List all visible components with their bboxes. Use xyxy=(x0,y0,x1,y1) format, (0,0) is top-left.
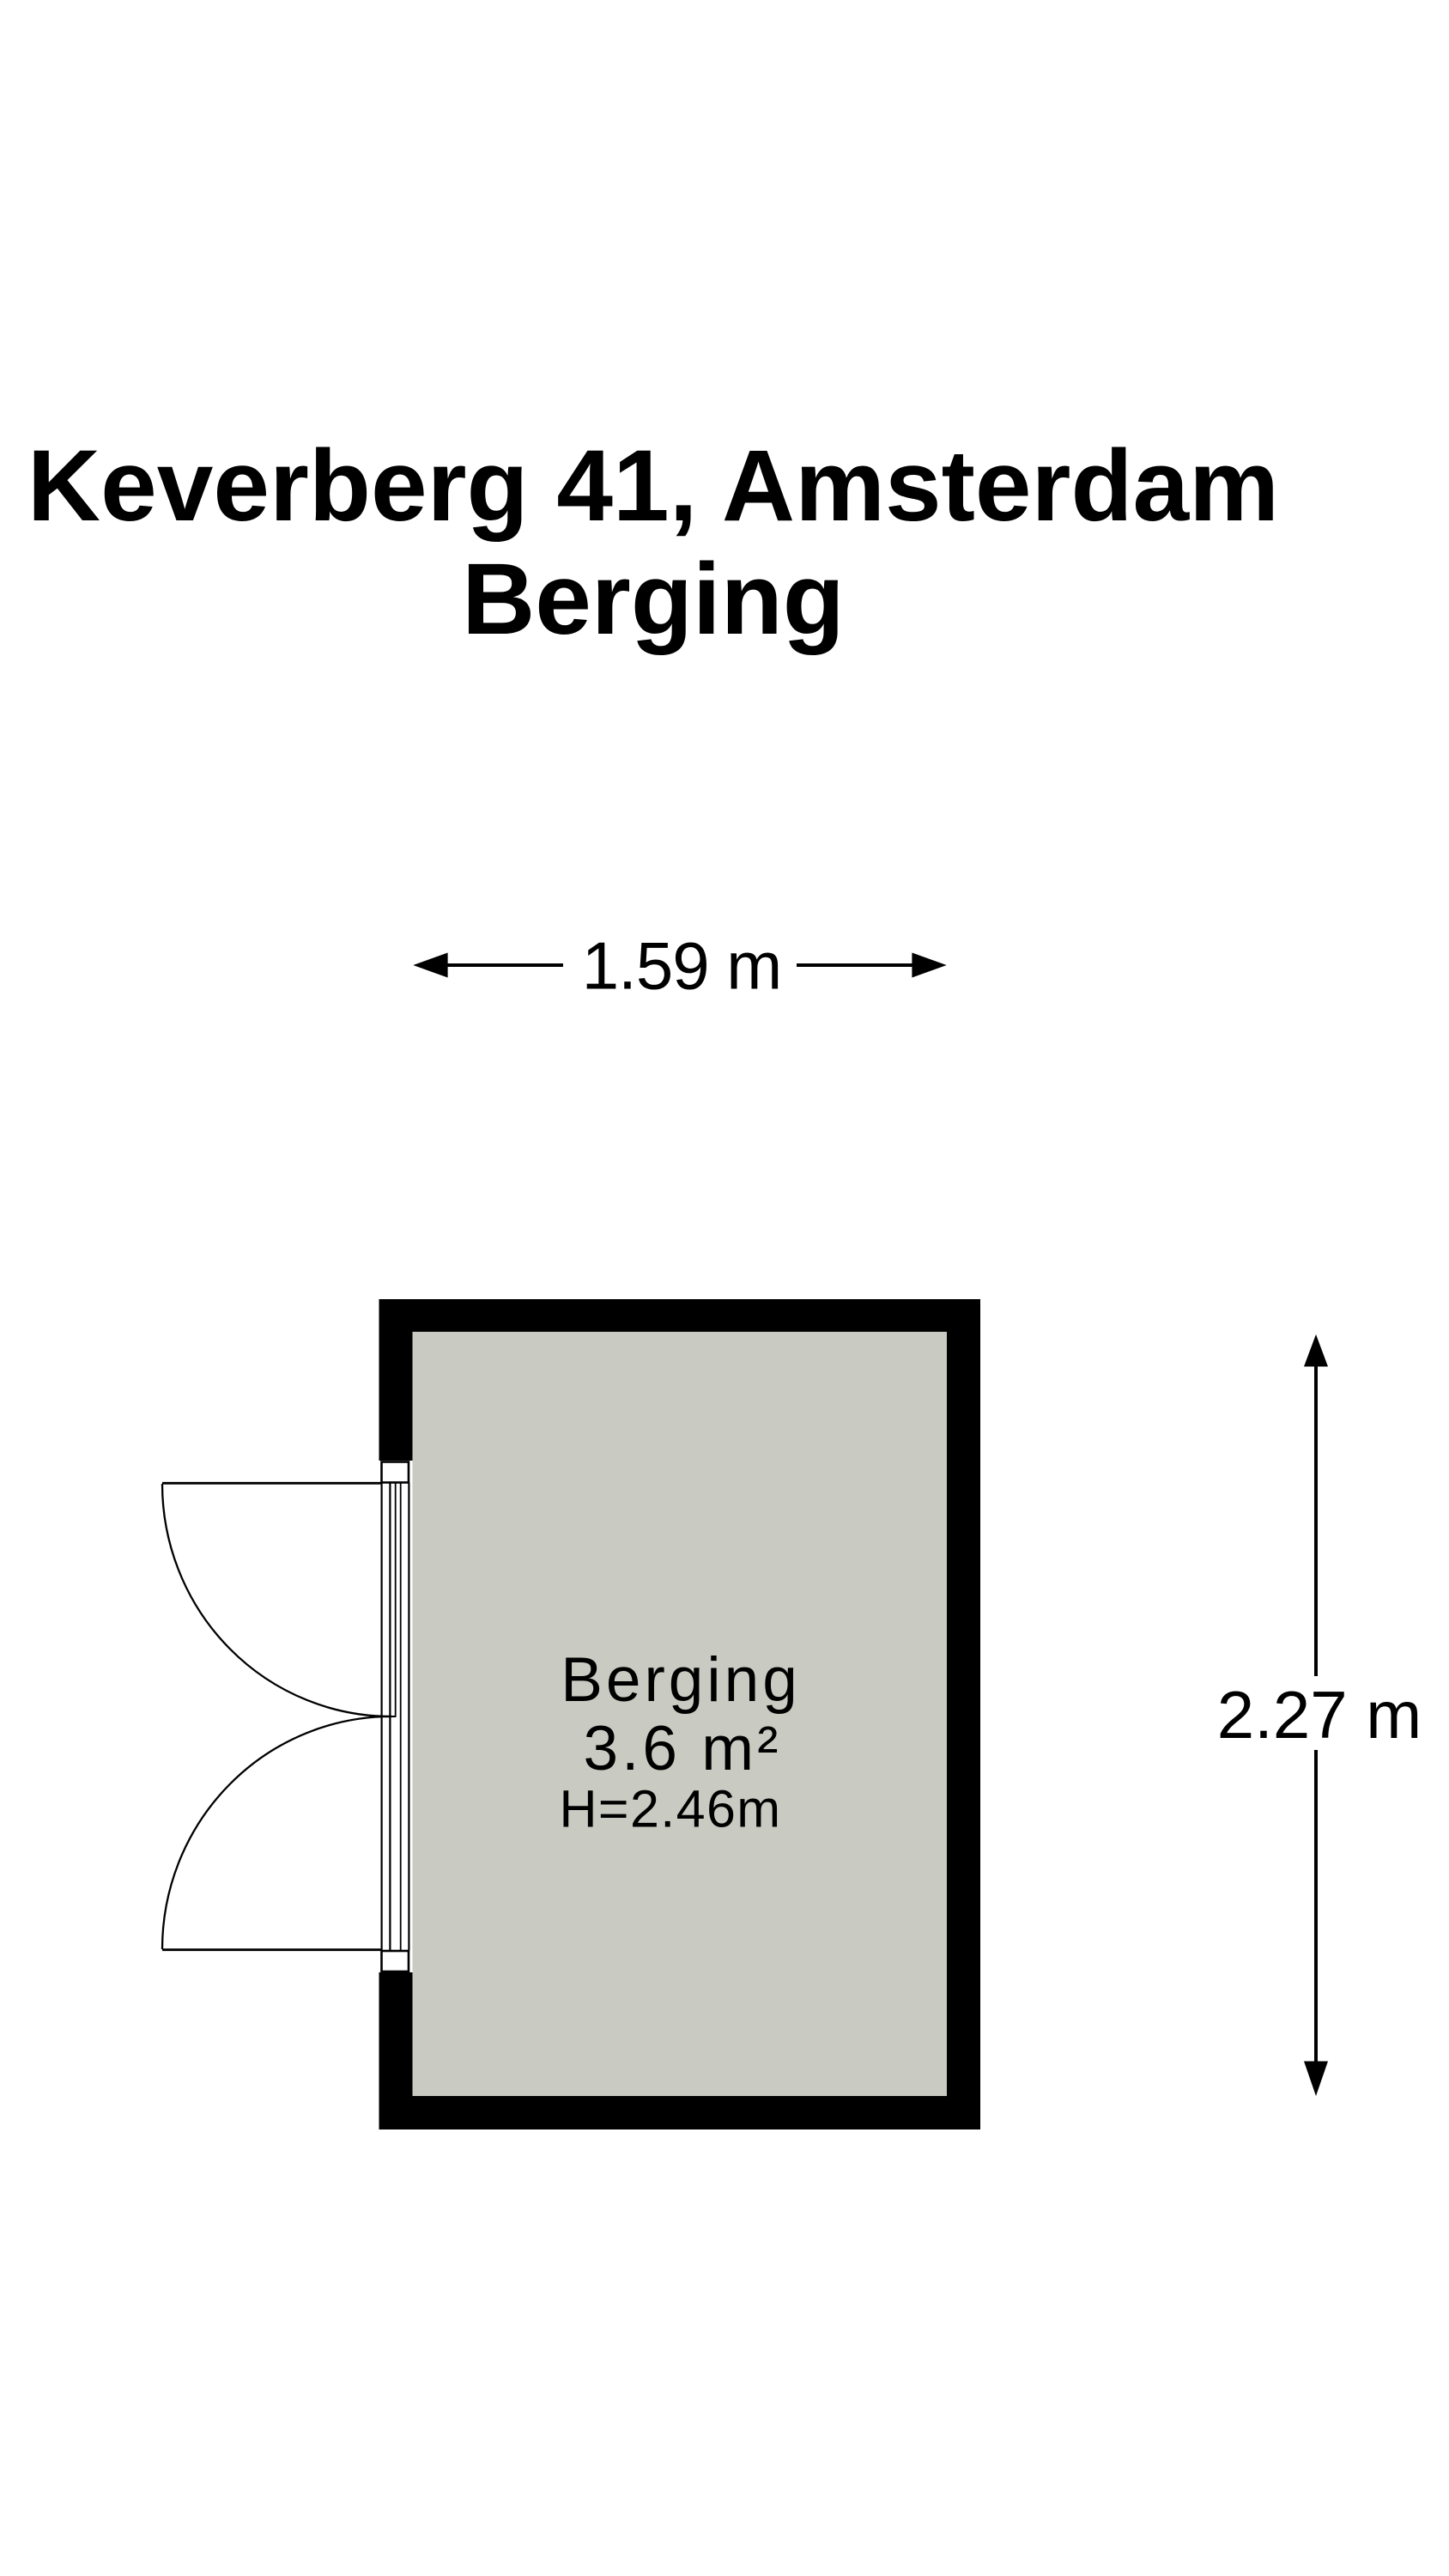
svg-text:Berging: Berging xyxy=(561,1645,801,1715)
svg-text:3.6 m²: 3.6 m² xyxy=(584,1714,782,1783)
svg-text:Keverberg 41, Amsterdam: Keverberg 41, Amsterdam xyxy=(27,429,1279,543)
svg-text:Berging: Berging xyxy=(462,543,845,656)
svg-text:2.27 m: 2.27 m xyxy=(1217,1677,1422,1753)
svg-text:1.59 m: 1.59 m xyxy=(582,928,781,1004)
svg-text:H=2.46m: H=2.46m xyxy=(559,1780,781,1838)
